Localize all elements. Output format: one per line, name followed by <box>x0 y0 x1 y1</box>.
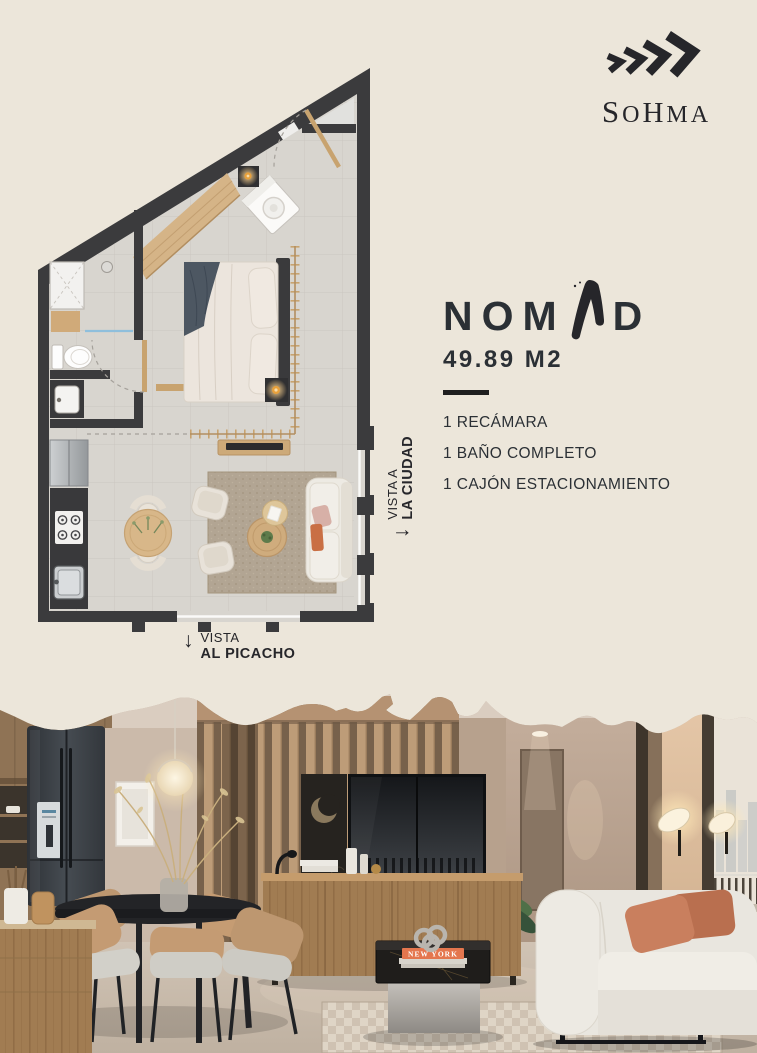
utensil-jar <box>4 888 28 924</box>
kitchen-sink <box>54 566 84 599</box>
shower-head <box>102 262 113 273</box>
view-label-picacho: ↓ VISTA AL PICACHO <box>183 630 295 663</box>
unit-info: NOM D 49.89 M2 1 RECÁMARA 1 BAÑO COMPLET… <box>443 280 743 507</box>
brand-logo: S O H M A <box>577 28 733 128</box>
feature-item: 1 BAÑO COMPLETO <box>443 445 743 463</box>
right-windows <box>354 426 374 622</box>
refrigerator <box>27 726 105 906</box>
floor-plan <box>38 64 378 641</box>
cutting-board <box>32 892 54 924</box>
unit-name: NOM D <box>443 280 743 337</box>
vase <box>346 848 357 874</box>
nightstand-lamp <box>238 166 259 187</box>
divider-rule <box>443 390 489 395</box>
view-city-line1: VISTA A <box>385 436 401 520</box>
sofa-throw <box>310 524 324 552</box>
sofa <box>306 478 352 582</box>
down-arrow-icon: ↓ <box>391 528 412 539</box>
interior-photo-render: NEW YORK <box>0 690 757 1053</box>
unit-area: 49.89 M2 <box>443 346 743 374</box>
down-arrow-icon: ↓ <box>183 630 194 651</box>
feature-item: 1 RECÁMARA <box>443 414 743 432</box>
bath-bench <box>51 311 80 332</box>
flyer-page: S O H M A <box>0 0 757 1053</box>
tv-console <box>218 440 290 455</box>
view-picacho-line2: AL PICACHO <box>201 646 296 663</box>
brand-letter: M <box>666 103 687 127</box>
stove <box>55 511 83 544</box>
unit-name-prefix: NOM <box>443 296 566 337</box>
nightstand-lamp <box>265 378 288 402</box>
floor-plan-drawing <box>38 64 378 636</box>
kitchen <box>50 440 88 609</box>
bath-vanity <box>50 380 84 418</box>
brand-letter: H <box>642 99 663 128</box>
brand-letter: S <box>602 96 619 127</box>
sofa <box>533 889 757 1052</box>
feature-item: 1 CAJÓN ESTACIONAMIENTO <box>443 476 743 494</box>
chevrons-icon <box>599 28 711 84</box>
brand-letter: A <box>691 103 708 127</box>
view-city-line2: LA CIUDAD <box>400 436 417 520</box>
books <box>300 860 338 866</box>
brush-letter-a-icon <box>566 280 608 342</box>
view-label-city: ↓ VISTA A LA CIUDAD <box>378 428 424 546</box>
pillow <box>248 267 278 329</box>
brand-name: S O H M A <box>602 96 708 128</box>
feature-list: 1 RECÁMARA 1 BAÑO COMPLETO 1 CAJÓN ESTAC… <box>443 414 743 494</box>
view-picacho-line1: VISTA <box>201 630 296 646</box>
toilet <box>52 345 92 369</box>
unit-name-suffix: D <box>613 296 652 337</box>
brand-letter: O <box>622 103 639 127</box>
armchair <box>197 540 236 575</box>
interior-photo: NEW YORK <box>0 690 757 1053</box>
